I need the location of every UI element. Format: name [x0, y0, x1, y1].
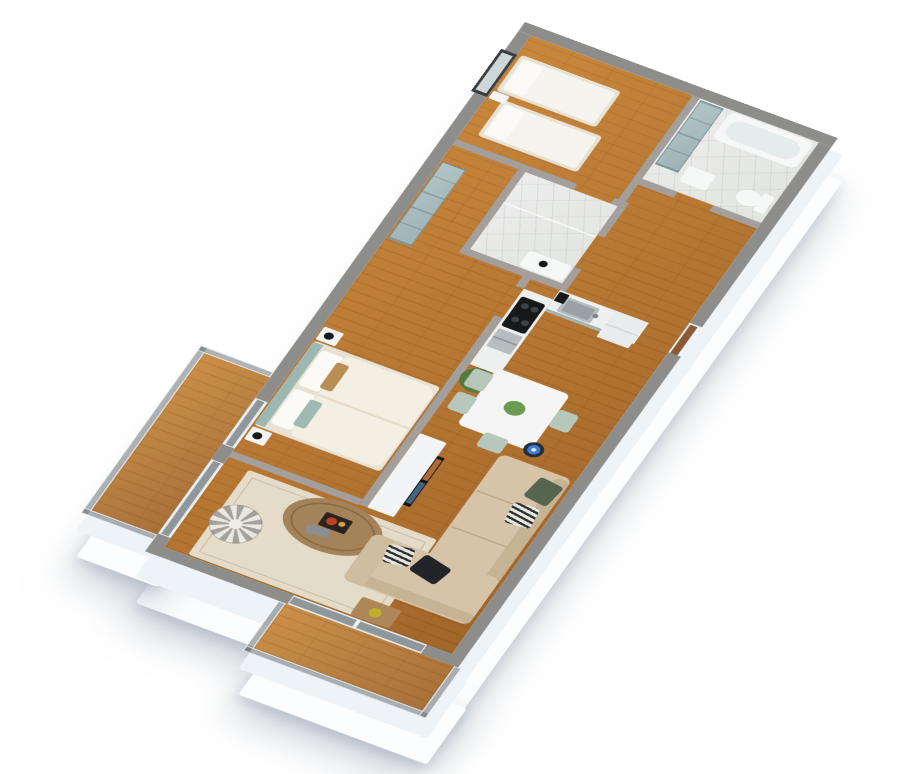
- floor-plan-render: [0, 0, 900, 774]
- apartment-plan-layer: [140, 22, 838, 675]
